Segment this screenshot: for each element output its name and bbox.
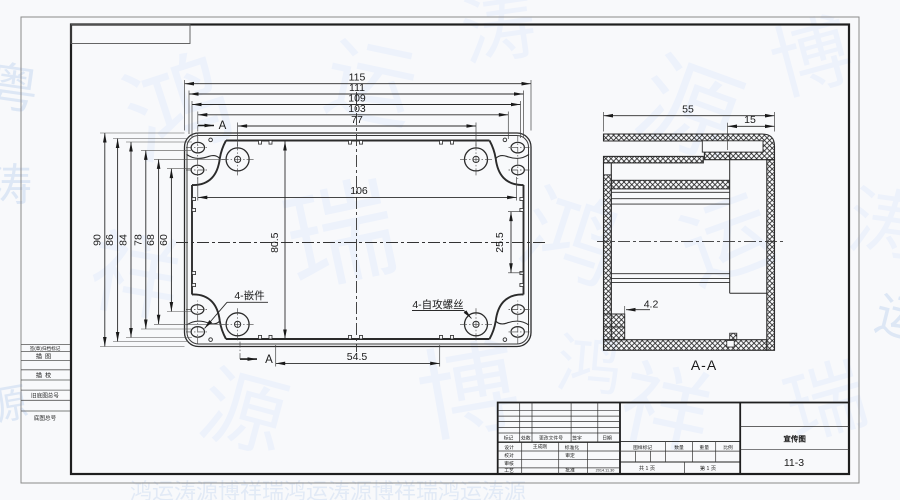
svg-text:宣传图: 宣传图 bbox=[783, 434, 806, 444]
svg-text:A: A bbox=[219, 120, 227, 132]
svg-text:第 1 页: 第 1 页 bbox=[700, 464, 716, 472]
svg-text:处数: 处数 bbox=[521, 435, 531, 442]
svg-text:批准: 批准 bbox=[565, 467, 575, 474]
svg-text:86: 86 bbox=[104, 234, 116, 246]
svg-text:鸿运涛源博祥瑞鸿运涛源博祥瑞鸿运涛源: 鸿运涛源博祥瑞鸿运涛源博祥瑞鸿运涛源 bbox=[130, 479, 526, 500]
svg-text:日期: 日期 bbox=[602, 436, 612, 442]
svg-text:标记: 标记 bbox=[504, 435, 514, 442]
svg-text:签字: 签字 bbox=[572, 435, 582, 442]
svg-text:2014.11.30: 2014.11.30 bbox=[596, 469, 615, 473]
svg-text:图样标记: 图样标记 bbox=[633, 444, 652, 451]
svg-text:84: 84 bbox=[118, 234, 130, 246]
svg-text:4.2: 4.2 bbox=[644, 298, 659, 310]
svg-text:80.5: 80.5 bbox=[269, 232, 281, 253]
svg-text:A-A: A-A bbox=[691, 357, 717, 373]
svg-text:更改文件号: 更改文件号 bbox=[539, 435, 563, 442]
svg-text:底图总号: 底图总号 bbox=[34, 414, 57, 422]
svg-text:审核: 审核 bbox=[504, 460, 514, 467]
svg-text:A: A bbox=[265, 354, 273, 366]
svg-text:54.5: 54.5 bbox=[347, 351, 368, 363]
svg-text:描图: 描图 bbox=[36, 353, 54, 361]
svg-text:数量: 数量 bbox=[674, 444, 684, 451]
svg-text:签(章)归档标记: 签(章)归档标记 bbox=[30, 345, 61, 352]
svg-text:103: 103 bbox=[348, 103, 366, 115]
svg-text:校对: 校对 bbox=[504, 452, 514, 459]
svg-text:106: 106 bbox=[350, 185, 368, 197]
svg-text:涛: 涛 bbox=[456, 0, 542, 76]
svg-text:审定: 审定 bbox=[565, 452, 575, 459]
svg-text:描校: 描校 bbox=[36, 372, 54, 380]
svg-text:标准化: 标准化 bbox=[565, 444, 580, 451]
svg-text:重量: 重量 bbox=[699, 444, 709, 451]
svg-text:77: 77 bbox=[351, 114, 363, 126]
svg-text:68: 68 bbox=[145, 234, 157, 246]
svg-text:共 1 页: 共 1 页 bbox=[639, 464, 655, 472]
svg-text:4-自攻螺丝: 4-自攻螺丝 bbox=[412, 298, 463, 311]
svg-text:工艺: 工艺 bbox=[504, 468, 514, 474]
svg-text:55: 55 bbox=[682, 103, 694, 115]
svg-text:王成刚: 王成刚 bbox=[533, 443, 548, 450]
svg-text:旧底图总号: 旧底图总号 bbox=[31, 392, 59, 400]
svg-text:涛: 涛 bbox=[0, 161, 32, 210]
svg-text:25.5: 25.5 bbox=[494, 232, 506, 253]
svg-text:11-3: 11-3 bbox=[784, 457, 804, 469]
svg-text:90: 90 bbox=[91, 234, 103, 246]
svg-text:比例: 比例 bbox=[723, 444, 733, 451]
svg-text:60: 60 bbox=[158, 234, 170, 246]
svg-text:78: 78 bbox=[132, 234, 144, 246]
svg-text:设计: 设计 bbox=[504, 444, 514, 451]
svg-text:4-嵌件: 4-嵌件 bbox=[234, 290, 264, 302]
svg-text:15: 15 bbox=[744, 114, 756, 126]
